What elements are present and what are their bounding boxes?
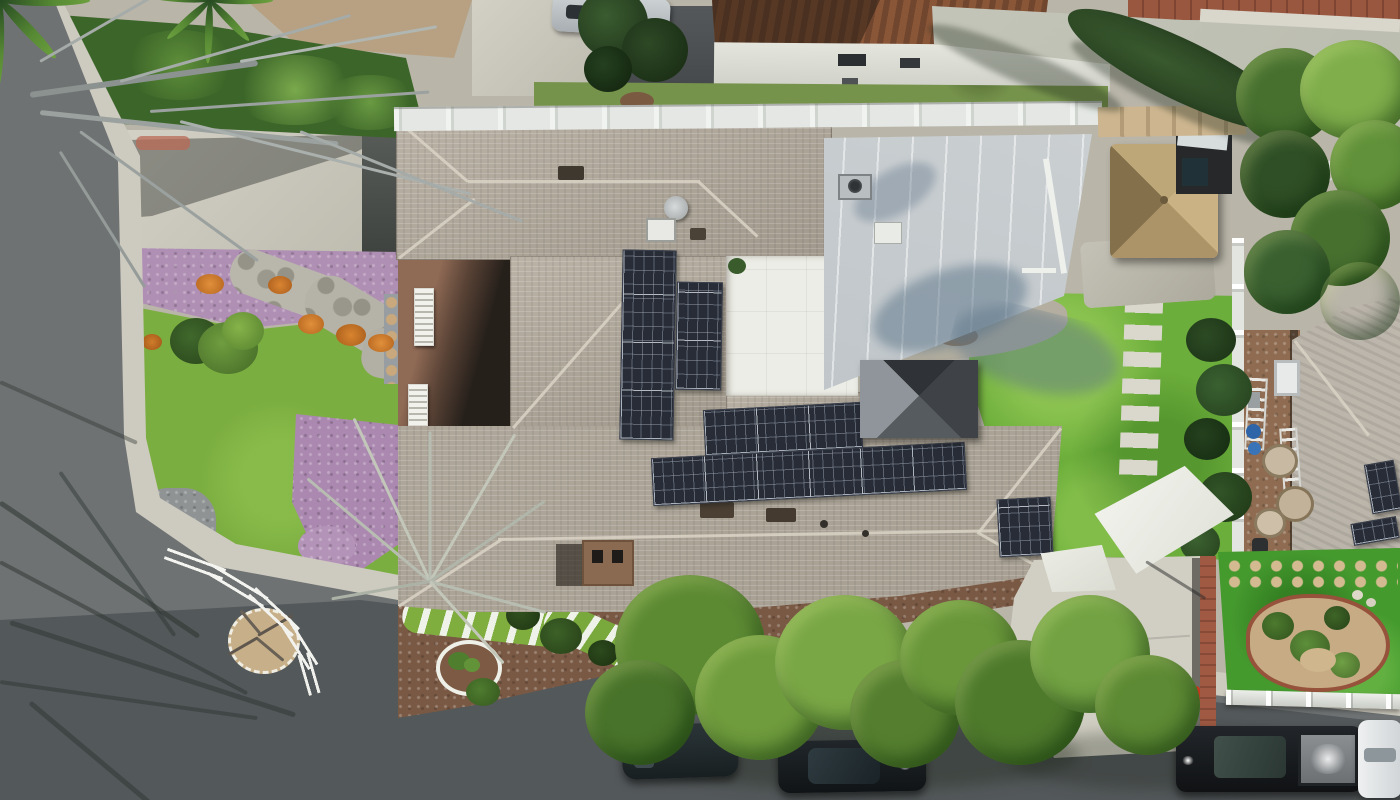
tree-canopy bbox=[1244, 230, 1330, 314]
white-suv-windshield bbox=[1364, 748, 1396, 762]
roof-vent bbox=[690, 228, 706, 240]
pavilion-roof bbox=[860, 360, 978, 438]
truck-windshield bbox=[1214, 736, 1286, 778]
skylight bbox=[646, 218, 676, 242]
street-tree-canopy bbox=[1095, 655, 1200, 755]
blue-barrel bbox=[1246, 424, 1261, 439]
chimney-shadow bbox=[556, 544, 582, 586]
conifer-tree bbox=[622, 18, 688, 82]
flower-orange bbox=[336, 324, 366, 346]
lawn-tree-branch bbox=[429, 432, 432, 582]
flower-orange bbox=[368, 334, 394, 352]
pink-soil-spot bbox=[136, 136, 190, 150]
mulch-shrub bbox=[540, 618, 582, 654]
ridge-line bbox=[468, 180, 700, 183]
satellite-dish bbox=[664, 196, 688, 220]
turf-paver-dots bbox=[1224, 558, 1398, 592]
chimney bbox=[582, 540, 634, 586]
island-bush bbox=[1262, 612, 1294, 640]
garden-bush bbox=[222, 312, 264, 350]
flower-orange bbox=[268, 276, 292, 294]
solar-array-small-right bbox=[997, 497, 1054, 558]
flower-orange bbox=[298, 314, 324, 334]
roof-pipe bbox=[820, 520, 828, 528]
patio-bush bbox=[728, 258, 746, 274]
truck-bed-streak bbox=[1308, 744, 1348, 774]
courtyard-bench bbox=[408, 384, 428, 426]
roof-vent bbox=[700, 502, 734, 518]
island-dry-twigs bbox=[1300, 648, 1336, 672]
stepping-stones bbox=[1119, 297, 1163, 482]
patio-table bbox=[1254, 508, 1286, 538]
roof-vent bbox=[558, 166, 584, 180]
brick-wall bbox=[1200, 556, 1216, 734]
aerial-photo bbox=[0, 0, 1400, 800]
mulch-shrub bbox=[588, 640, 618, 666]
gazebo-finial bbox=[1160, 196, 1168, 204]
truck-headlight bbox=[1182, 756, 1194, 765]
round-stone bbox=[1352, 590, 1363, 600]
fence-hedge bbox=[1186, 318, 1236, 362]
roof-pipe bbox=[862, 530, 869, 537]
flower-orange bbox=[142, 334, 162, 350]
tree-canopy bbox=[1320, 262, 1400, 340]
flat-roof-box bbox=[874, 222, 902, 244]
mulch-bush bbox=[466, 678, 500, 706]
neighbor-window bbox=[900, 58, 920, 68]
blue-barrel bbox=[1248, 442, 1261, 455]
roof-vent bbox=[766, 508, 796, 522]
street-tree-canopy bbox=[585, 660, 695, 765]
island-bush bbox=[1324, 606, 1350, 630]
planter-greenery bbox=[464, 658, 480, 672]
neighbor-window bbox=[838, 54, 866, 66]
patio-table bbox=[1262, 444, 1298, 478]
solar-array-upper-right bbox=[675, 282, 723, 391]
round-stone bbox=[1366, 598, 1376, 607]
property-fence-white bbox=[394, 101, 1102, 131]
flat-roof-white-trim bbox=[1022, 268, 1056, 273]
ac-fan bbox=[848, 179, 862, 193]
spa-water bbox=[1182, 158, 1208, 186]
neighbor-window-white bbox=[1274, 360, 1300, 396]
main-roof-upper-wing bbox=[396, 118, 832, 260]
chimney-flue bbox=[612, 550, 623, 563]
fence-hedge bbox=[1196, 364, 1252, 416]
flower-orange bbox=[196, 274, 224, 294]
conifer-tree bbox=[584, 46, 632, 92]
fence-hedge bbox=[1184, 418, 1230, 460]
shaded-side-yard bbox=[362, 130, 398, 256]
solar-array-upper-left bbox=[619, 250, 676, 441]
chimney-flue bbox=[592, 550, 603, 563]
courtyard-bench bbox=[414, 288, 434, 346]
